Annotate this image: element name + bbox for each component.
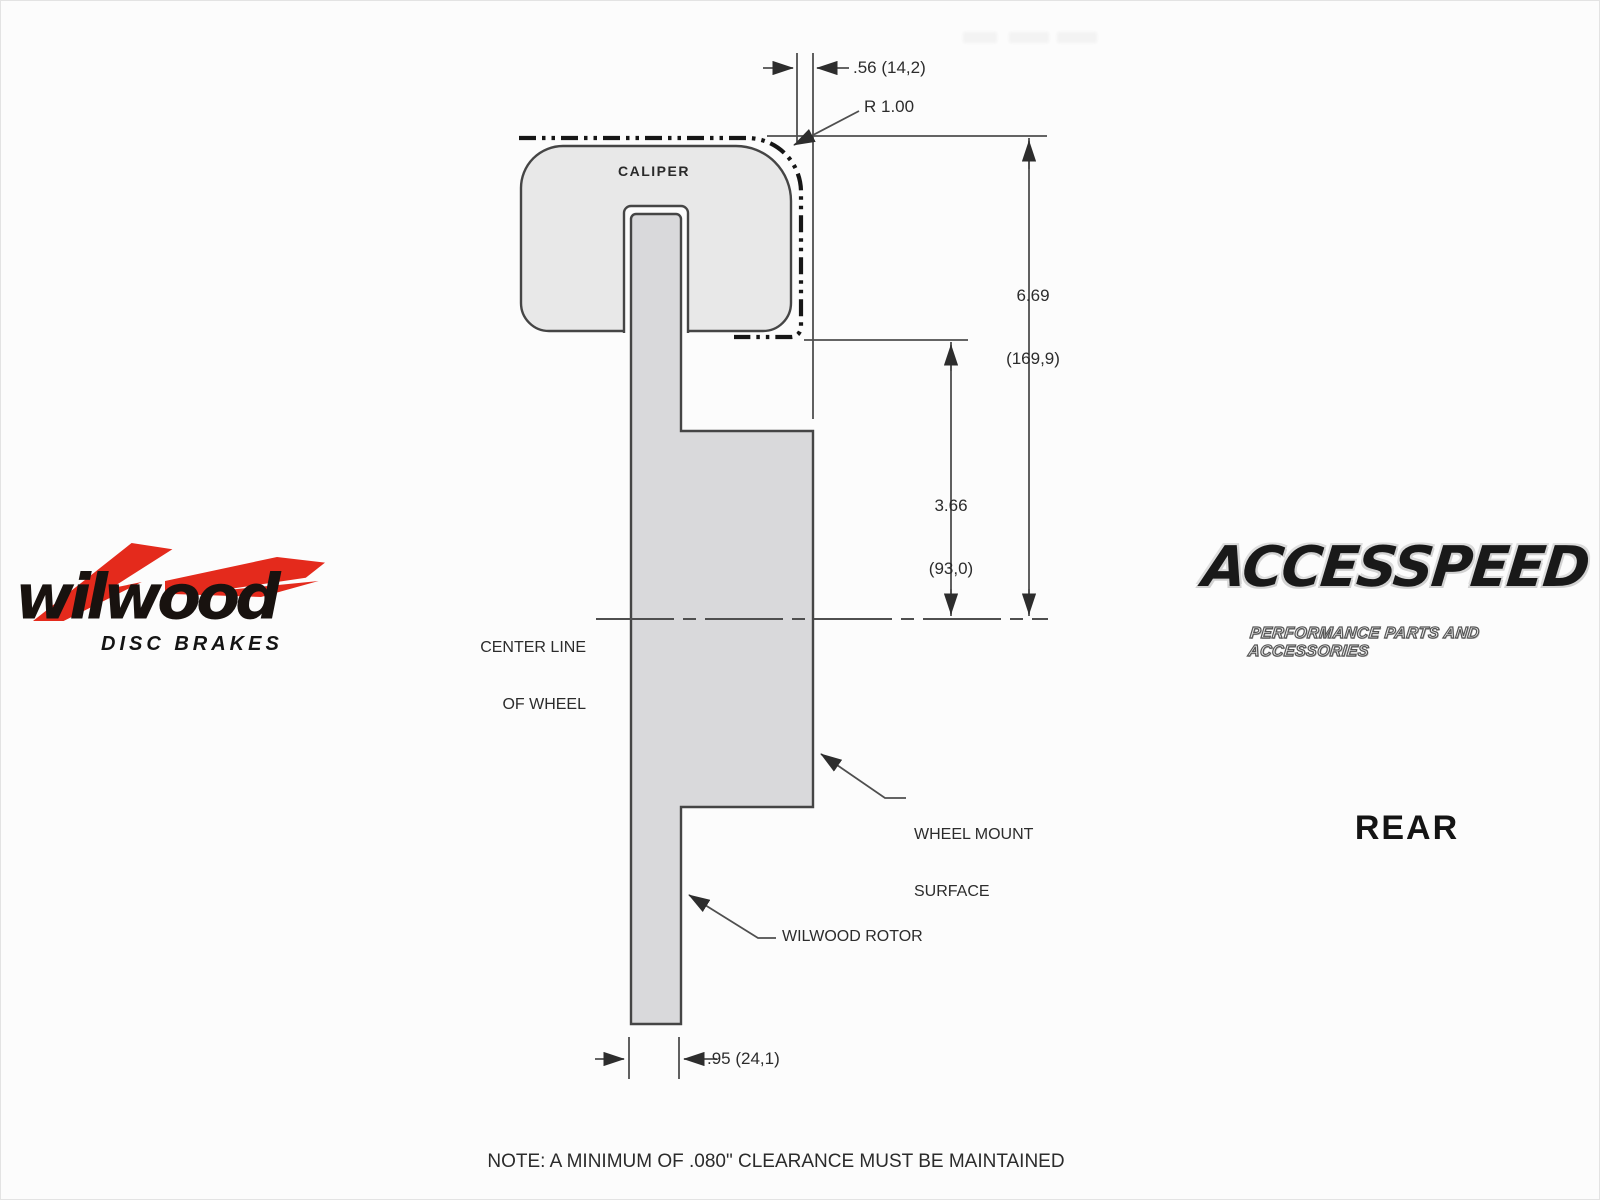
dimension-mount-height-mm: (93,0): [905, 558, 997, 579]
dimension-top-width: .56 (14,2): [853, 58, 926, 78]
wilwood-wordmark: wilwood: [15, 562, 276, 635]
dimension-radius: R 1.00: [864, 97, 914, 117]
caliper-label: CALIPER: [594, 163, 714, 179]
accesspeed-wordmark: ACCESSPEED: [1200, 535, 1592, 600]
wheel-mount-surface-label: WHEEL MOUNT SURFACE: [914, 787, 1033, 939]
dimension-mount-height: 3.66 (93,0): [905, 453, 997, 621]
view-label-rear: REAR: [1346, 809, 1468, 848]
centerline-label-line1: CENTER LINE: [439, 638, 586, 657]
dimension-mount-height-in: 3.66: [905, 495, 997, 516]
wilwood-rotor-label: WILWOOD ROTOR: [782, 927, 923, 946]
leader-wheel-mount-surface: [821, 754, 906, 798]
accesspeed-tagline: PERFORMANCE PARTS AND ACCESSORIES: [1247, 625, 1600, 661]
dimension-overall-height-mm: (169,9): [987, 348, 1079, 369]
dimension-overall-height-in: 6.69: [987, 285, 1079, 306]
page-background: CALIPER .56 (14,2) R 1.00 6.69 (169,9) 3…: [0, 0, 1600, 1200]
wheel-mount-surface-line2: SURFACE: [914, 882, 1033, 901]
wheel-mount-surface-line1: WHEEL MOUNT: [914, 825, 1033, 844]
centerline-label-line2: OF WHEEL: [439, 695, 586, 714]
wilwood-logo: wilwood DISC BRAKES: [15, 541, 325, 661]
leader-radius: [794, 111, 859, 145]
clearance-note-line1: NOTE: A MINIMUM OF .080" CLEARANCE MUST …: [291, 1150, 1261, 1174]
wilwood-tagline: DISC BRAKES: [101, 633, 283, 656]
centerline-label: CENTER LINE OF WHEEL: [439, 600, 586, 752]
leader-wilwood-rotor: [689, 895, 776, 938]
clearance-note: NOTE: A MINIMUM OF .080" CLEARANCE MUST …: [291, 1102, 1261, 1200]
dimension-overall-height: 6.69 (169,9): [987, 243, 1079, 411]
dimension-rotor-width: .95 (24,1): [707, 1049, 780, 1069]
accesspeed-logo: ACCESSPEED PERFORMANCE PARTS AND ACCESSO…: [1199, 533, 1600, 663]
